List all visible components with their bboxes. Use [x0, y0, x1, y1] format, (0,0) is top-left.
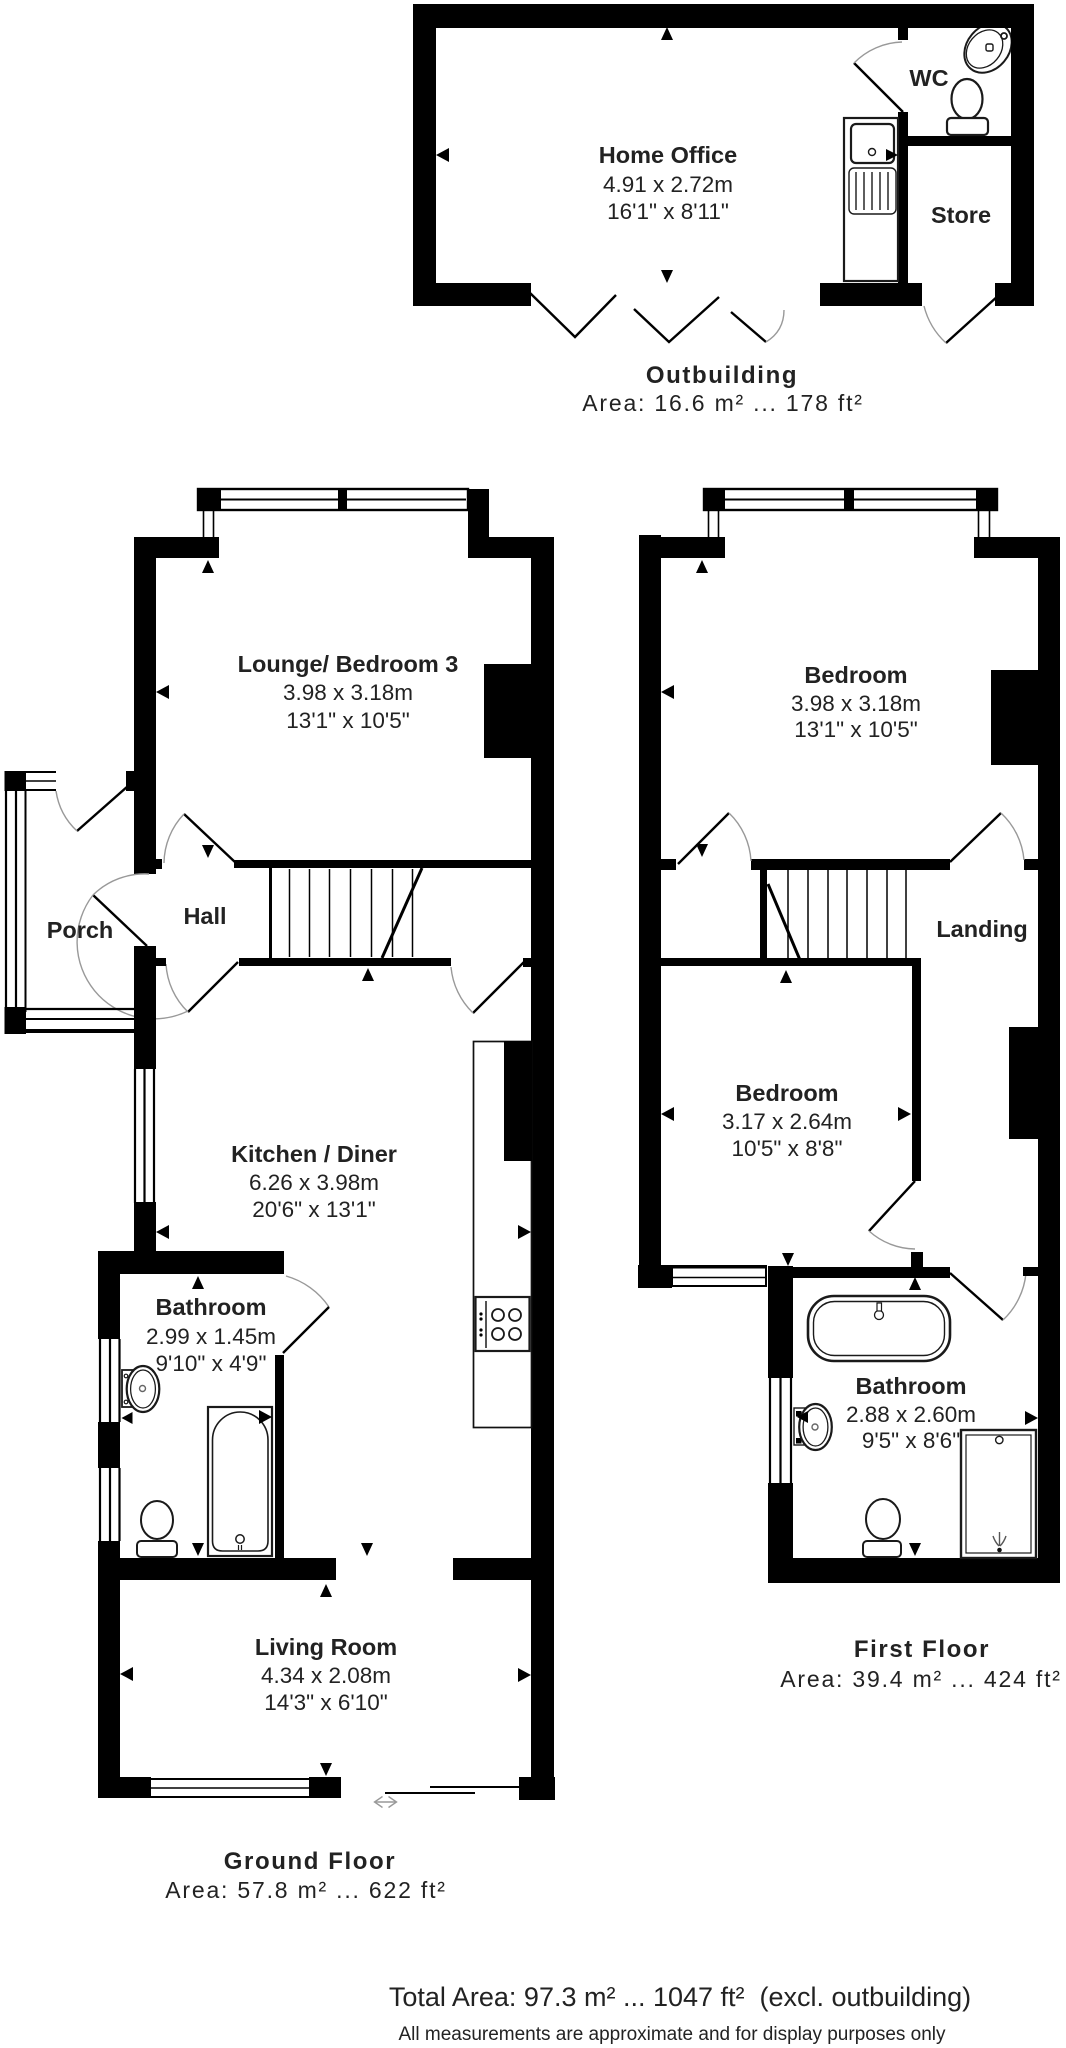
svg-text:Lounge/ Bedroom 3: Lounge/ Bedroom 3: [238, 651, 459, 677]
svg-text:Kitchen / Diner: Kitchen / Diner: [231, 1141, 397, 1167]
svg-text:3.98 x 3.18m: 3.98 x 3.18m: [791, 691, 921, 716]
svg-text:9'5" x 8'6": 9'5" x 8'6": [862, 1428, 960, 1453]
svg-text:9'10" x 4'9": 9'10" x 4'9": [156, 1351, 267, 1376]
svg-text:16'1" x 8'11": 16'1" x 8'11": [607, 199, 729, 224]
svg-text:Hall: Hall: [183, 903, 226, 929]
svg-text:2.88 x 2.60m: 2.88 x 2.60m: [846, 1402, 976, 1427]
svg-text:4.91 x 2.72m: 4.91 x 2.72m: [603, 172, 733, 197]
svg-text:All measurements are approxima: All measurements are approximate and for…: [398, 2024, 946, 2045]
svg-text:2.99 x 1.45m: 2.99 x 1.45m: [146, 1324, 276, 1349]
svg-text:Outbuilding: Outbuilding: [646, 362, 798, 389]
svg-text:Living Room: Living Room: [255, 1634, 397, 1660]
svg-text:13'1" x 10'5": 13'1" x 10'5": [794, 717, 917, 742]
svg-text:Porch: Porch: [47, 917, 114, 943]
svg-text:Area: 57.8 m² ... 622 ft²: Area: 57.8 m² ... 622 ft²: [165, 1877, 447, 1903]
svg-text:13'1" x 10'5": 13'1" x 10'5": [286, 708, 409, 733]
svg-text:Store: Store: [931, 202, 991, 228]
svg-text:10'5" x 8'8": 10'5" x 8'8": [732, 1136, 843, 1161]
svg-text:Area: 16.6 m² ... 178 ft²: Area: 16.6 m² ... 178 ft²: [582, 390, 864, 416]
svg-text:6.26 x 3.98m: 6.26 x 3.98m: [249, 1170, 379, 1195]
svg-text:Ground Floor: Ground Floor: [224, 1848, 397, 1875]
svg-text:Home Office: Home Office: [599, 142, 737, 168]
svg-text:Landing: Landing: [936, 916, 1027, 942]
svg-text:Bathroom: Bathroom: [856, 1373, 967, 1399]
svg-text:WC: WC: [909, 65, 948, 91]
svg-text:3.98 x 3.18m: 3.98 x 3.18m: [283, 680, 413, 705]
svg-text:Bedroom: Bedroom: [804, 662, 907, 688]
svg-text:14'3" x 6'10": 14'3" x 6'10": [264, 1690, 387, 1715]
svg-text:Bathroom: Bathroom: [156, 1294, 267, 1320]
svg-text:4.34 x 2.08m: 4.34 x 2.08m: [261, 1663, 391, 1688]
svg-text:20'6" x 13'1": 20'6" x 13'1": [252, 1197, 375, 1222]
svg-text:Bedroom: Bedroom: [735, 1080, 838, 1106]
svg-text:Total Area: 97.3 m² ... 1047 f: Total Area: 97.3 m² ... 1047 ft² (excl. …: [389, 1982, 971, 2012]
svg-text:3.17 x 2.64m: 3.17 x 2.64m: [722, 1109, 852, 1134]
svg-text:Area: 39.4 m² ... 424 ft²: Area: 39.4 m² ... 424 ft²: [780, 1666, 1062, 1692]
svg-text:First Floor: First Floor: [854, 1636, 990, 1663]
